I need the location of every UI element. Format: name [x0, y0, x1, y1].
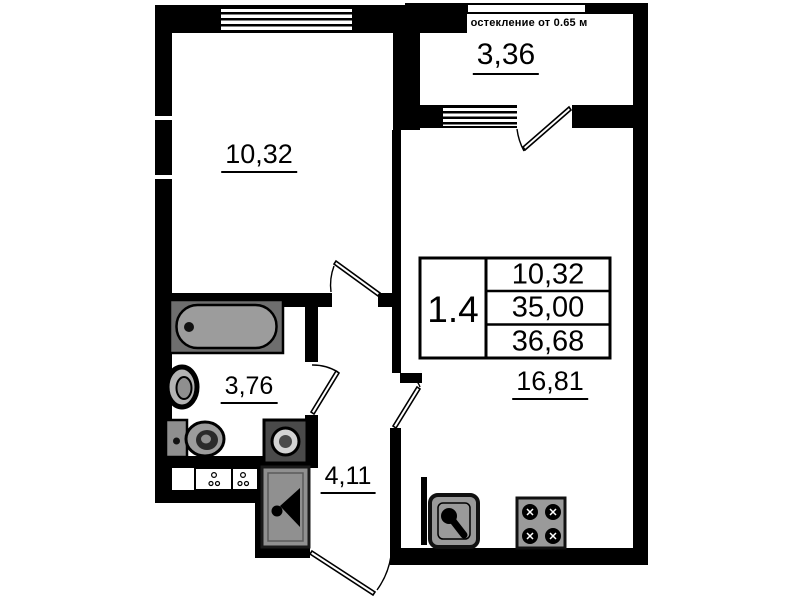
window-balcony-inner	[443, 105, 517, 128]
hallway-area-value: 4,11	[321, 464, 376, 494]
window-line	[443, 105, 517, 108]
toilet-bowl-center	[201, 435, 211, 444]
bathtub-drain	[184, 322, 194, 332]
wall-left-notch-top	[155, 116, 172, 120]
door-swing-icon	[331, 266, 334, 292]
bath-right-wall-upper	[305, 300, 318, 362]
wall-top-left	[155, 5, 221, 33]
window-line	[221, 30, 352, 33]
burner-icon	[545, 504, 561, 520]
door-swing-icon	[377, 556, 391, 590]
toilet-icon	[166, 420, 224, 457]
sink-inner	[177, 377, 192, 399]
room-door-stub	[378, 293, 394, 307]
floorplan-canvas: остекление от 0.65 м 3,36 10,32 3,76 4,1…	[0, 0, 799, 600]
bathroom-area-label: 3,76	[221, 374, 278, 404]
window-line	[443, 126, 517, 128]
window-line	[221, 24, 352, 27]
window-line	[443, 111, 517, 114]
window-line	[221, 12, 352, 15]
table-value-room: 10,32	[512, 259, 585, 292]
washer-door-inner	[279, 435, 292, 448]
bathtub-icon	[170, 300, 283, 353]
stove-icon	[517, 498, 565, 548]
hanger-hook	[272, 506, 283, 517]
hallway-area-label: 4,11	[321, 464, 376, 494]
burner-icon	[545, 528, 561, 544]
burner-icon	[522, 504, 538, 520]
door-leaf	[523, 107, 571, 150]
kitchen-living-area-label: 16,81	[512, 368, 588, 400]
shaft-outer-wall	[155, 490, 267, 503]
window-room-top	[221, 5, 352, 33]
washing-machine-icon	[264, 420, 307, 463]
burner-icon	[522, 528, 538, 544]
door-swing-icon	[517, 129, 524, 151]
balcony-glazing-note: остекление от 0.65 м	[471, 18, 588, 29]
balcony-sill-right	[572, 105, 648, 128]
toilet-button	[173, 438, 180, 445]
window-line	[221, 18, 352, 21]
shaft-box	[195, 468, 258, 490]
room-area-value: 10,32	[221, 141, 297, 173]
bathroom-area-value: 3,76	[221, 374, 278, 404]
entrance-door	[310, 551, 391, 595]
divider-wall-top	[393, 33, 420, 130]
room-area-label: 10,32	[221, 141, 297, 173]
door-leaf	[334, 261, 380, 296]
room-door	[331, 261, 380, 296]
door-swing-icon	[312, 365, 338, 372]
wardrobe-hanger-icon	[262, 467, 309, 547]
door-leaf	[311, 371, 339, 414]
balcony-door	[517, 107, 571, 151]
table-value-total: 36,68	[512, 325, 585, 358]
wall-bottom	[398, 548, 648, 565]
floorplan-drawing	[0, 0, 799, 600]
kitchen-stub-wall	[421, 477, 427, 545]
kitchen-living-area-value: 16,81	[512, 368, 588, 400]
window-line	[443, 122, 517, 125]
door-leaf	[310, 551, 375, 595]
sink-icon	[167, 367, 197, 407]
balcony-area-value: 3,36	[473, 40, 539, 75]
wall-right	[633, 105, 648, 565]
divider-wall-bottom	[390, 428, 401, 565]
wall-left-notch-bottom	[155, 175, 172, 179]
kitchen-sink-icon	[430, 495, 478, 547]
door-leaf	[393, 387, 420, 428]
vent-shaft-icon	[195, 468, 258, 490]
window-line	[443, 117, 517, 120]
divider-wall-mid	[392, 130, 401, 373]
unit-number-label: 1.4	[427, 291, 478, 328]
table-value-living: 35,00	[512, 292, 585, 325]
balcony-area-label: 3,36	[473, 40, 539, 75]
bathroom-door	[311, 365, 339, 414]
balcony-glazing-window	[468, 5, 585, 12]
window-line	[221, 5, 352, 9]
